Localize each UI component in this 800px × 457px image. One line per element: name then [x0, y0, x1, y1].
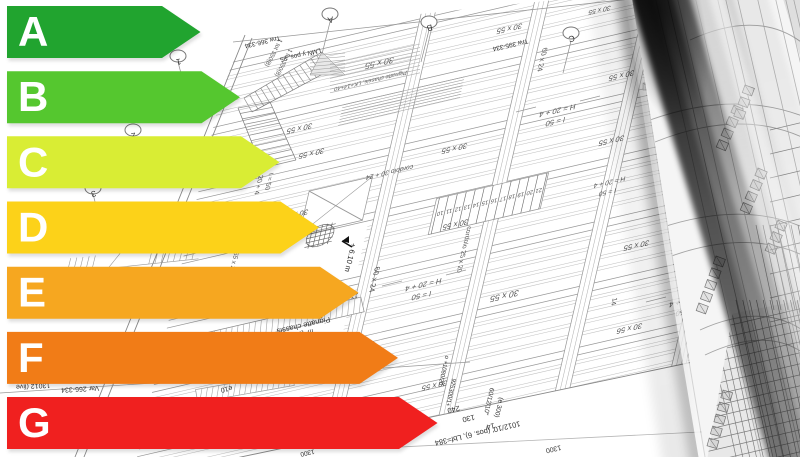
svg-text:E: E — [18, 269, 46, 316]
svg-text:B: B — [18, 73, 48, 120]
svg-text:F: F — [18, 334, 44, 381]
svg-text:C: C — [18, 138, 48, 185]
svg-text:D: D — [18, 204, 48, 251]
svg-text:A: A — [18, 8, 48, 55]
svg-text:G: G — [18, 399, 51, 446]
